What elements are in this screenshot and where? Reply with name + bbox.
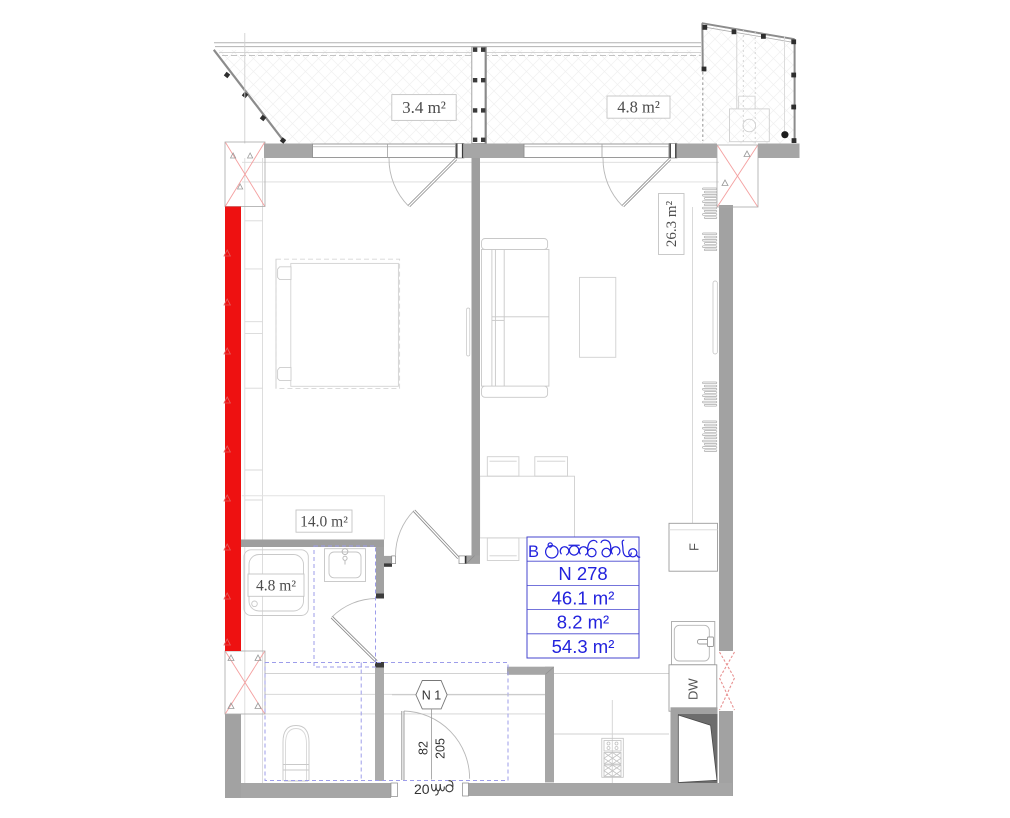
svg-text:54.3 m²: 54.3 m² [552,636,615,657]
svg-text:205: 205 [434,738,448,759]
svg-text:26.3 m²: 26.3 m² [664,200,680,247]
svg-text:14.0 m²: 14.0 m² [300,514,348,531]
svg-text:B: B [528,543,539,561]
svg-text:4.8 m²: 4.8 m² [256,578,296,595]
svg-text:4.8 m²: 4.8 m² [617,98,660,117]
svg-text:3.4 m²: 3.4 m² [402,98,446,117]
svg-text:DW: DW [686,678,701,700]
svg-text:F: F [687,543,702,551]
svg-text:N 1: N 1 [422,689,442,703]
svg-text:82: 82 [417,741,431,755]
svg-text:8.2 m²: 8.2 m² [557,612,609,633]
svg-text:46.1 m²: 46.1 m² [552,588,615,609]
svg-text:20: 20 [414,781,430,797]
svg-text:N 278: N 278 [558,563,607,584]
